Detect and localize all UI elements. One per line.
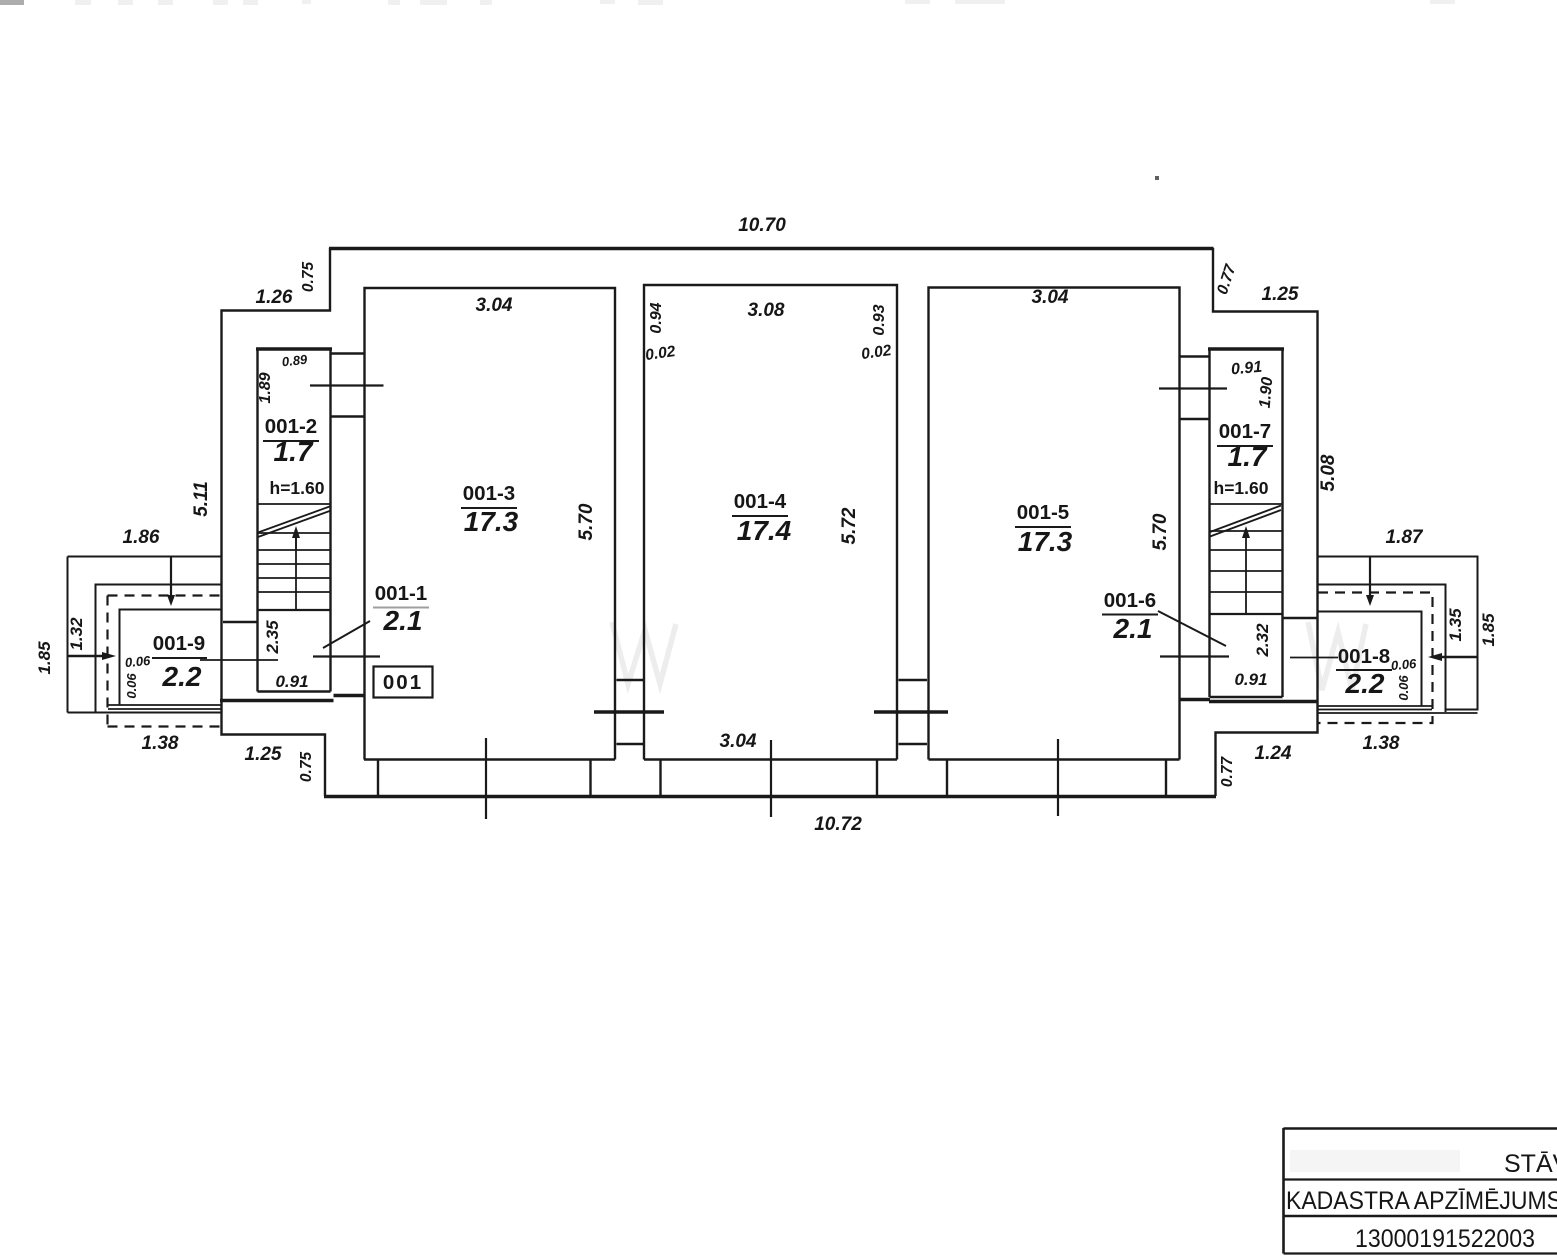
svg-text:2.1: 2.1 — [1113, 613, 1153, 644]
svg-text:5.08: 5.08 — [1318, 454, 1339, 491]
svg-text:001-7: 001-7 — [1219, 420, 1271, 443]
svg-text:2.32: 2.32 — [1253, 623, 1272, 658]
svg-text:13000191522003: 13000191522003 — [1355, 1225, 1535, 1253]
svg-text:STĀVA PLĀNS: STĀVA PLĀNS — [1504, 1150, 1557, 1178]
svg-text:0.91: 0.91 — [1230, 359, 1263, 379]
svg-text:2.35: 2.35 — [263, 620, 282, 655]
svg-text:0.91: 0.91 — [1234, 670, 1267, 689]
svg-text:1.87: 1.87 — [1386, 527, 1424, 548]
svg-text:3.04: 3.04 — [1032, 287, 1069, 308]
svg-text:0.91: 0.91 — [275, 672, 308, 691]
svg-text:001-6: 001-6 — [1104, 589, 1156, 612]
svg-text:1.85: 1.85 — [35, 641, 54, 675]
svg-text:2.2: 2.2 — [162, 661, 202, 692]
svg-text:001-4: 001-4 — [734, 490, 787, 513]
svg-text:3.04: 3.04 — [720, 731, 757, 752]
svg-text:5.11: 5.11 — [191, 481, 212, 517]
svg-text:0.94: 0.94 — [648, 302, 665, 333]
svg-text:3.08: 3.08 — [748, 300, 785, 321]
svg-text:1.24: 1.24 — [1255, 743, 1292, 764]
svg-text:5.70: 5.70 — [576, 503, 597, 540]
svg-text:2.1: 2.1 — [383, 605, 423, 636]
svg-text:17.3: 17.3 — [1018, 526, 1073, 557]
svg-text:0.75: 0.75 — [300, 262, 317, 293]
svg-text:001-1: 001-1 — [375, 582, 427, 605]
svg-text:1.35: 1.35 — [1446, 608, 1465, 642]
svg-text:0.77: 0.77 — [1219, 756, 1236, 788]
svg-text:0.06: 0.06 — [124, 673, 139, 699]
svg-text:1.25: 1.25 — [245, 744, 282, 765]
svg-text:1.32: 1.32 — [67, 617, 86, 651]
svg-text:001-8: 001-8 — [1338, 645, 1390, 668]
svg-text:2.2: 2.2 — [1345, 668, 1385, 699]
svg-text:0.06: 0.06 — [1396, 675, 1411, 701]
svg-text:1.25: 1.25 — [1262, 284, 1299, 305]
svg-text:0.75: 0.75 — [298, 752, 315, 783]
svg-text:1.38: 1.38 — [1363, 733, 1400, 754]
svg-text:KADASTRA APZĪMĒJUMS: KADASTRA APZĪMĒJUMS — [1286, 1187, 1557, 1215]
svg-text:h=1.60: h=1.60 — [270, 478, 325, 498]
svg-text:1.38: 1.38 — [142, 733, 179, 754]
svg-text:001-2: 001-2 — [265, 415, 317, 438]
svg-text:001: 001 — [383, 671, 423, 694]
svg-text:5.70: 5.70 — [1150, 513, 1171, 550]
svg-text:1.26: 1.26 — [256, 287, 293, 308]
svg-text:001-5: 001-5 — [1017, 501, 1069, 524]
svg-text:h=1.60: h=1.60 — [1214, 478, 1269, 498]
svg-text:0.06: 0.06 — [124, 653, 151, 670]
svg-text:1.89: 1.89 — [257, 372, 274, 403]
svg-text:1.86: 1.86 — [123, 527, 160, 548]
svg-text:1.85: 1.85 — [1479, 613, 1498, 647]
svg-text:17.3: 17.3 — [464, 506, 519, 537]
svg-text:0.89: 0.89 — [281, 352, 308, 370]
svg-text:001-3: 001-3 — [463, 482, 515, 505]
svg-text:10.70: 10.70 — [738, 215, 786, 236]
svg-text:001-9: 001-9 — [153, 632, 205, 655]
svg-text:1.90: 1.90 — [1257, 376, 1277, 409]
svg-text:3.04: 3.04 — [476, 295, 513, 316]
svg-text:10.72: 10.72 — [814, 814, 862, 835]
svg-text:0.06: 0.06 — [1390, 656, 1417, 673]
svg-text:17.4: 17.4 — [737, 515, 792, 546]
svg-text:0.93: 0.93 — [871, 304, 888, 335]
svg-text:5.72: 5.72 — [839, 507, 860, 544]
